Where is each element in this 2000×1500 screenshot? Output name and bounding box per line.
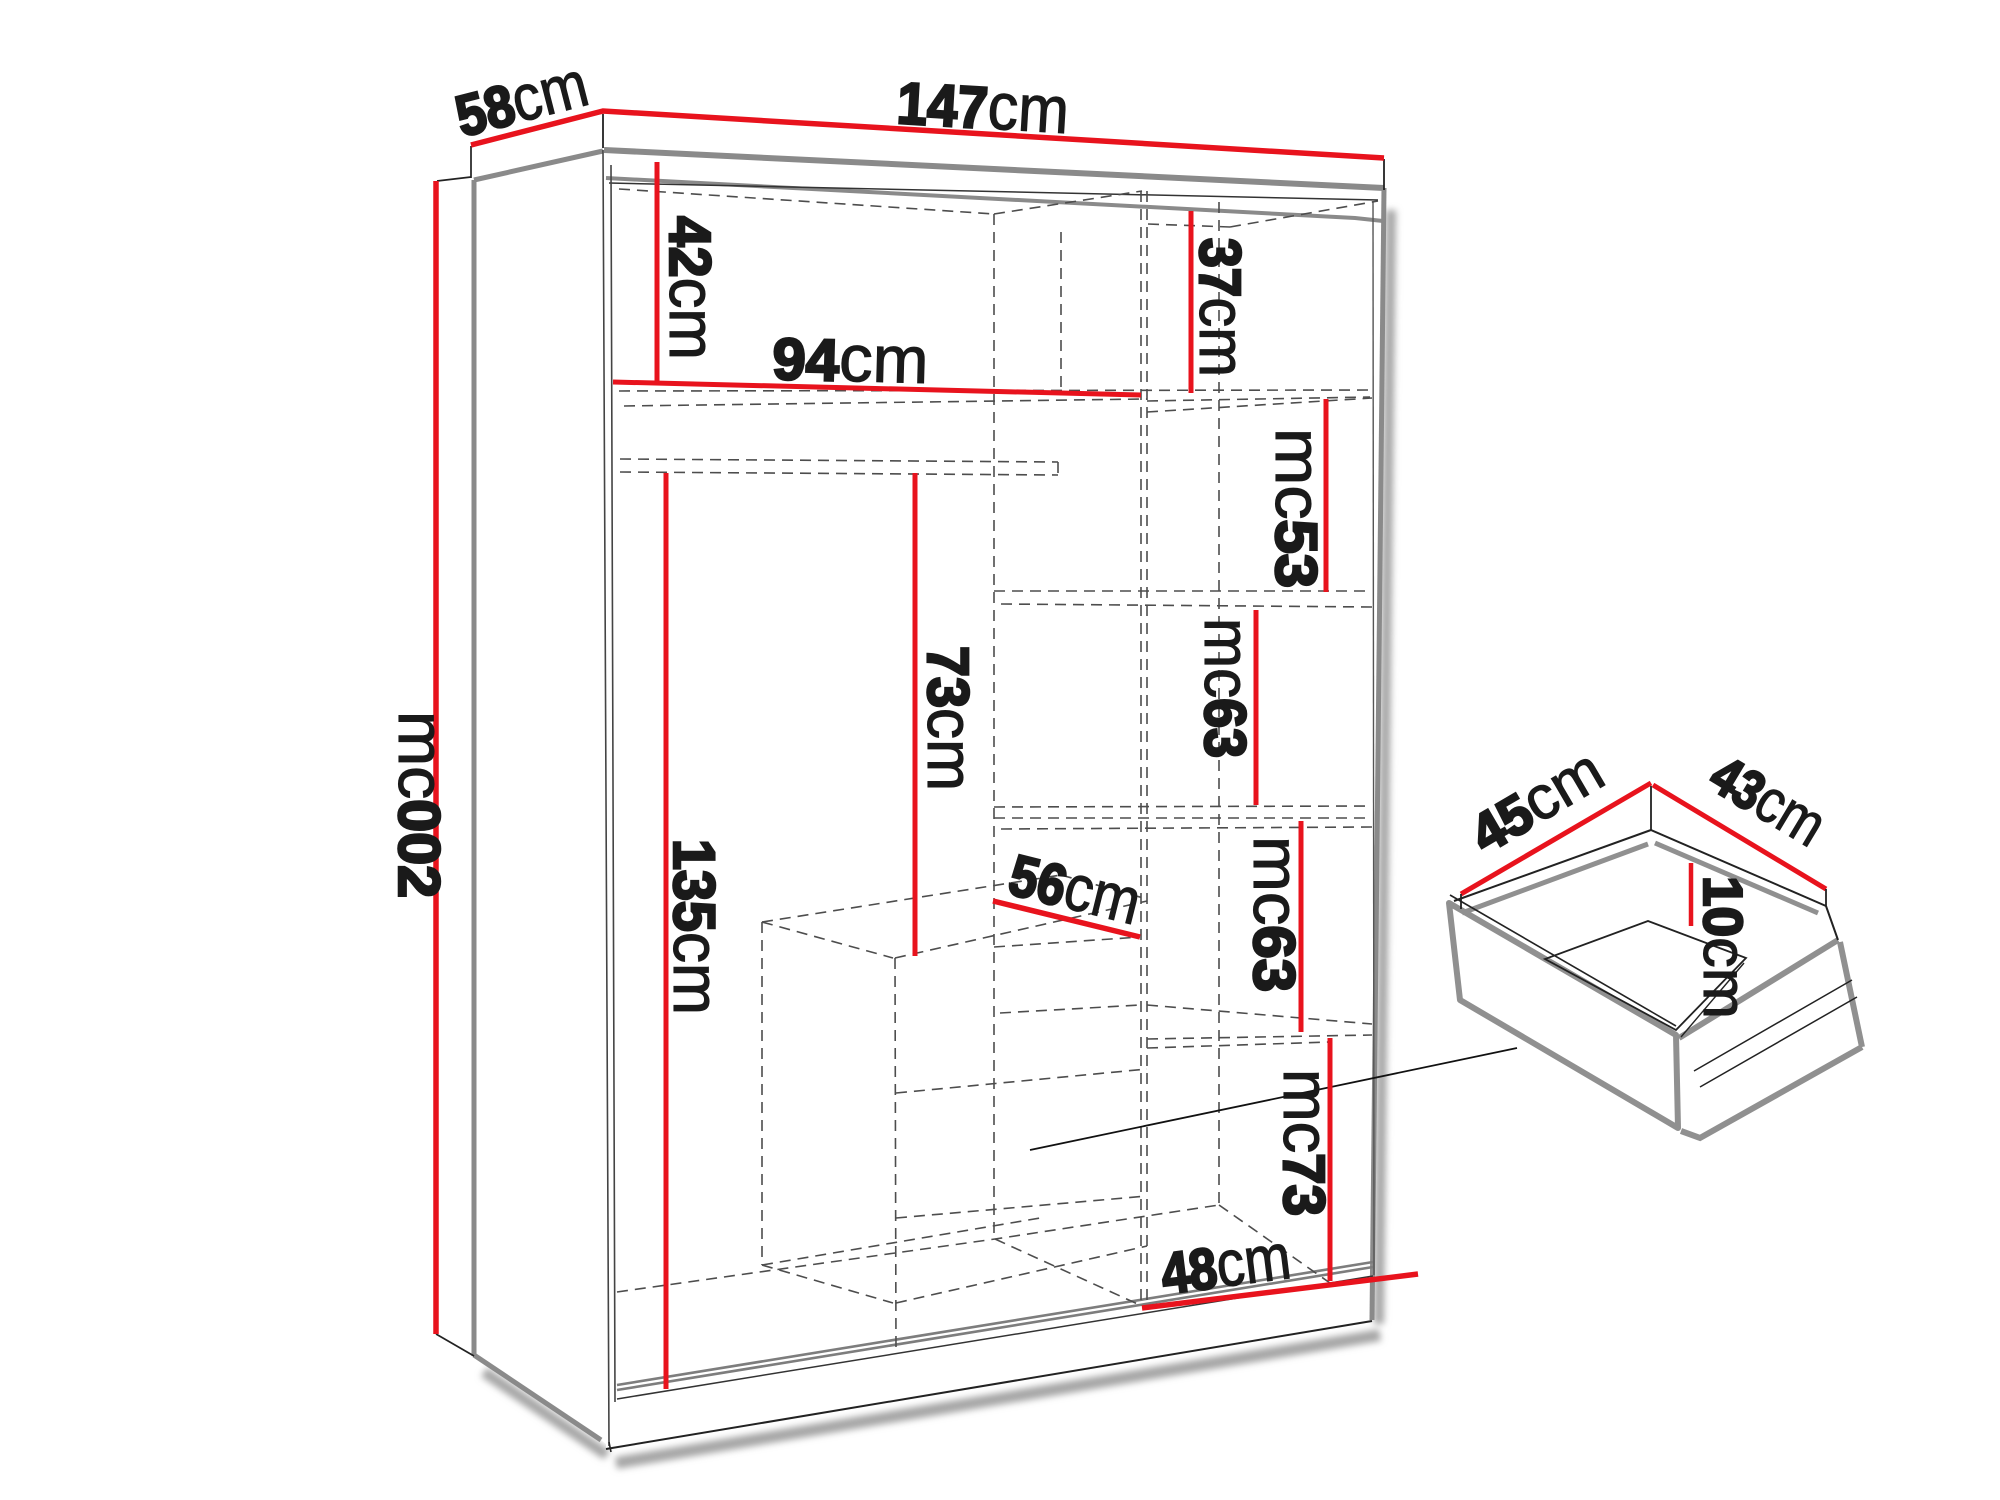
svg-text:43cm: 43cm <box>1699 739 1838 860</box>
svg-text:94cm: 94cm <box>772 320 930 398</box>
svg-text:mc63: mc63 <box>1191 618 1264 758</box>
svg-text:37cm: 37cm <box>1186 238 1259 377</box>
svg-text:58cm: 58cm <box>447 47 595 151</box>
svg-text:42cm: 42cm <box>656 216 729 360</box>
svg-text:135cm: 135cm <box>660 839 733 1015</box>
svg-text:mc73: mc73 <box>1270 1069 1343 1216</box>
svg-text:mc53: mc53 <box>1262 428 1335 588</box>
svg-text:mc002: mc002 <box>385 711 458 898</box>
svg-text:73cm: 73cm <box>914 646 987 791</box>
svg-text:10cm: 10cm <box>1690 876 1759 1019</box>
svg-text:147cm: 147cm <box>895 64 1071 148</box>
svg-text:mc63: mc63 <box>1240 836 1313 992</box>
